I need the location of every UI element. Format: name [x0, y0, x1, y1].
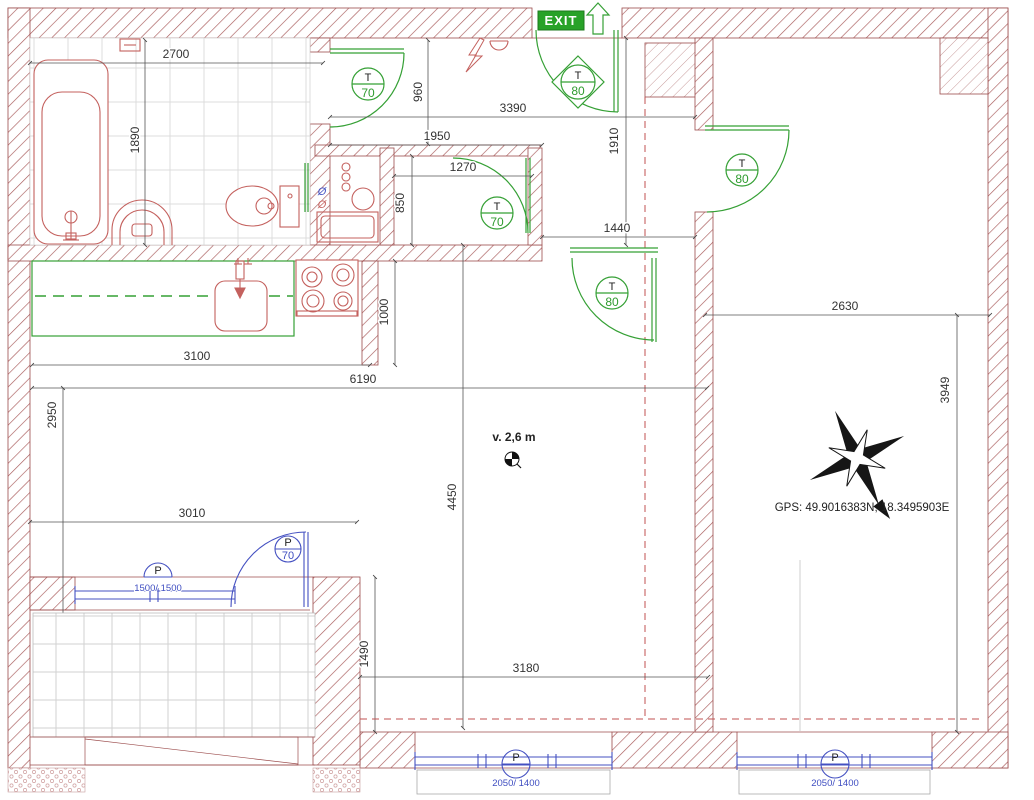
- dim-balcony-side-depth: 1490: [357, 640, 371, 667]
- compass-rose-icon: [763, 364, 952, 553]
- dim-kitchen-column-depth: 1000: [377, 298, 391, 325]
- balcony-door: [231, 532, 308, 607]
- wall-left: [8, 8, 30, 768]
- bottom-left-window-symbol: P 2050/ 1400: [492, 750, 540, 789]
- small-room-door-letter: T: [494, 201, 501, 213]
- dim-hall-width: 3390: [500, 101, 527, 115]
- gps-label: GPS: 49.9016383N, 18.3495903E: [775, 502, 950, 514]
- wall-bottom-c: [932, 732, 1008, 768]
- wall-top-left: [8, 8, 532, 38]
- living-room-door-symbol: T 80: [596, 277, 628, 309]
- wall-kitchen-column: [362, 261, 378, 365]
- balcony-door-symbol: P 70: [275, 536, 301, 562]
- balcony: P 1500/ 1500 P 70: [8, 532, 360, 792]
- floor-plan: T 70 2700 1890 Ø Ø T 70 1270: [0, 0, 1034, 800]
- balcony-window-symbol: P 1500/ 1500: [134, 563, 182, 594]
- balcony-window-letter: P: [154, 565, 161, 577]
- pillar-top-right: [940, 38, 988, 94]
- ceiling-height-label: v. 2,6 m: [492, 430, 535, 444]
- wall-balcony-column: [313, 577, 360, 765]
- balcony-tiles: [33, 613, 315, 737]
- insulation-strip-left: [8, 768, 85, 792]
- wall-bottom-a: [360, 732, 415, 768]
- wall-top-right: [622, 8, 1008, 38]
- stove: [296, 260, 358, 316]
- bottom-right-window-size: 2050/ 1400: [811, 778, 859, 789]
- exit-sign-label: EXIT: [545, 13, 578, 28]
- exit-arrow-icon: [587, 3, 609, 34]
- bottom-right-window-letter: P: [831, 752, 838, 764]
- bottom-right-window-symbol: P 2050/ 1400: [811, 750, 859, 789]
- toilet: [226, 186, 299, 227]
- dim-living-depth: 4450: [445, 483, 459, 510]
- kitchen-sink: [215, 261, 267, 331]
- dim-bathroom-width: 2700: [163, 47, 190, 61]
- insulation-strip-right: [313, 768, 360, 792]
- wall-rooms-top: [315, 145, 540, 156]
- balcony-door-number: 70: [282, 550, 294, 562]
- bottom-left-window-letter: P: [512, 752, 519, 764]
- wall-tech-small-divider: [380, 148, 394, 245]
- entrance-door-letter: T: [575, 70, 582, 82]
- wall-bathroom-right-stub: [310, 38, 330, 52]
- diameter-mark-waste: Ø: [317, 199, 328, 211]
- bathroom: T 70 2700 1890: [30, 38, 404, 245]
- right-room-door-number: 80: [735, 172, 749, 186]
- small-room-door-symbol: T 70: [481, 197, 513, 229]
- wall-right-room-top: [695, 38, 713, 130]
- electrical-lightning-icon: [466, 38, 484, 72]
- balcony-ramp: [30, 737, 315, 765]
- dim-right-room-depth: 3949: [938, 376, 952, 403]
- dim-hall-left-width: 1950: [424, 129, 451, 143]
- dim-living-bottom-width: 3180: [513, 661, 540, 675]
- dim-hall-opening-width: 1440: [604, 221, 631, 235]
- wall-right-room-bottom: [695, 212, 713, 732]
- small-room-door-number: 70: [490, 215, 504, 229]
- pillar-hall: [645, 43, 700, 97]
- doorbell-icon: [490, 41, 508, 50]
- entrance-door-number: 80: [571, 84, 585, 98]
- diameter-mark-supply: Ø: [317, 186, 328, 198]
- boiler-circle: [352, 188, 374, 210]
- pipe-circle-2: [342, 173, 350, 181]
- dim-entry-depth: 1910: [607, 127, 621, 154]
- balcony-door-letter: P: [284, 537, 291, 549]
- entrance-door-symbol: T 80: [552, 56, 604, 108]
- bathroom-door-symbol: T 70: [352, 68, 384, 100]
- dim-balcony-front-width: 3010: [179, 506, 206, 520]
- living-room-door-letter: T: [609, 281, 616, 293]
- right-room-door: [705, 126, 789, 212]
- pipe-circle-1: [342, 163, 350, 171]
- entrance-hall: EXIT T 80 960 3390 1950 1910 1440: [330, 3, 695, 719]
- dim-kitchen-width: 3100: [184, 349, 211, 363]
- wall-right: [988, 8, 1008, 768]
- right-room: T 80 2630 3949 GPS: 49.9016383N, 18.3495…: [705, 126, 990, 732]
- living-room-door-number: 80: [605, 295, 619, 309]
- dim-bathroom-door-height: 960: [411, 82, 425, 102]
- small-room: T 70 1270 850: [393, 156, 532, 245]
- wall-balcony-left: [30, 577, 75, 610]
- bathroom-door-letter: T: [365, 72, 372, 84]
- right-room-door-symbol: T 80: [726, 154, 758, 186]
- dim-right-room-width: 2630: [832, 299, 859, 313]
- wall-bottom-b: [612, 732, 737, 768]
- right-room-door-letter: T: [739, 158, 746, 170]
- dim-small-room-depth: 850: [393, 193, 407, 213]
- balcony-window-size: 1500/ 1500: [134, 583, 182, 594]
- wall-middle-band: [8, 245, 542, 261]
- ceiling-height-marker-icon: [505, 452, 521, 468]
- bottom-left-window-size: 2050/ 1400: [492, 778, 540, 789]
- dim-living-total-width: 6190: [350, 372, 377, 386]
- pipe-circle-3: [342, 183, 350, 191]
- dim-living-left-depth: 2950: [45, 401, 59, 428]
- exit-sign: EXIT: [538, 11, 584, 30]
- bathroom-door-number: 70: [361, 86, 375, 100]
- dim-bathroom-depth: 1890: [128, 126, 142, 153]
- dim-small-room-width: 1270: [450, 160, 477, 174]
